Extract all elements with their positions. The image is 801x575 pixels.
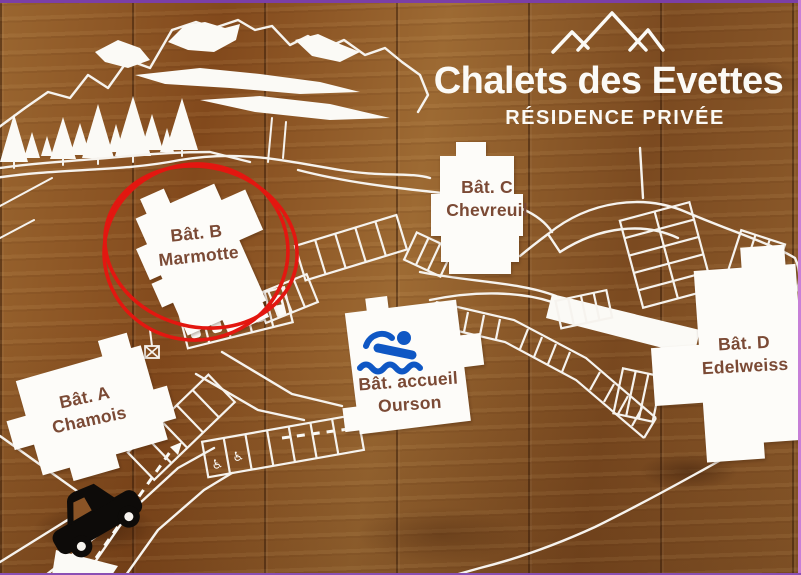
wheelchair-icon: ♿ bbox=[210, 457, 224, 474]
sign-subtitle: RÉSIDENCE PRIVÉE bbox=[455, 107, 775, 130]
frame-edge-top bbox=[0, 0, 801, 3]
mountain-peaks-icon bbox=[553, 13, 663, 52]
car-icon bbox=[37, 465, 151, 567]
wheelchair-icon: ♿ bbox=[231, 449, 245, 466]
building-label-edelweiss: Bât. D Edelweiss bbox=[681, 329, 801, 382]
resort-map-sign: ♿ ♿ bbox=[0, 0, 801, 575]
building-label-line: Bât. C bbox=[427, 176, 547, 199]
building-label-line: Chevreuil bbox=[427, 199, 547, 222]
building-label-chevreuil: Bât. C Chevreuil bbox=[427, 176, 547, 222]
parking-accessible-row: ♿ ♿ bbox=[202, 414, 364, 477]
parking-marmotte-east bbox=[295, 215, 453, 280]
sign-title: Chalets des Evettes bbox=[416, 60, 801, 103]
building-label-ourson: Bât. accueil Ourson bbox=[344, 366, 475, 421]
